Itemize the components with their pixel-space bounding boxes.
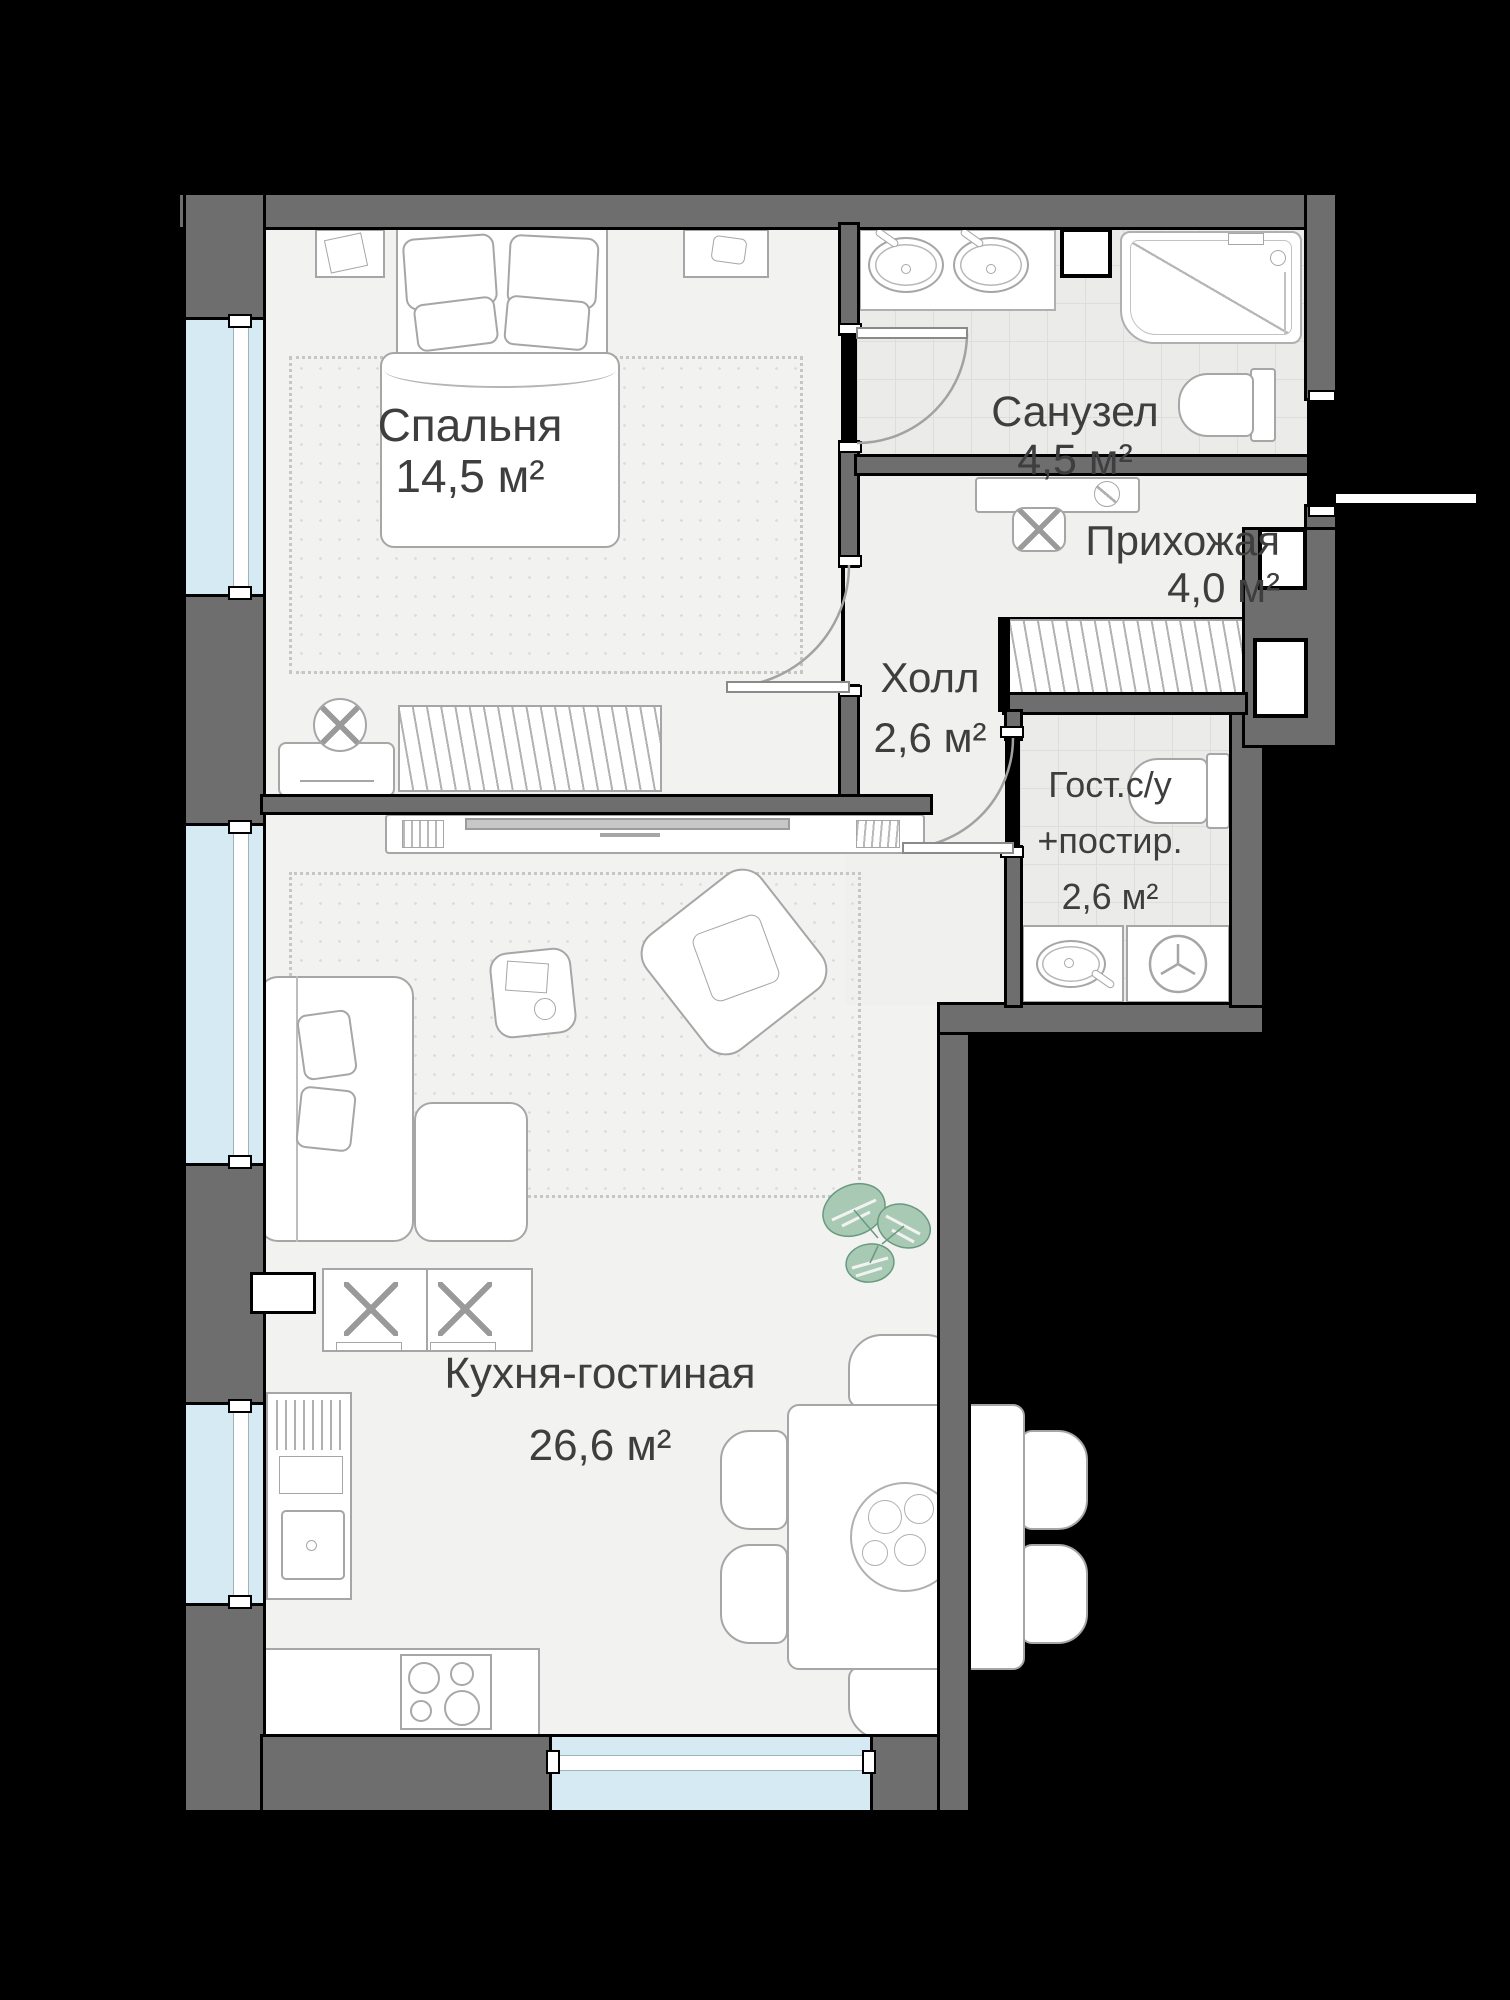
drain-dot [1064, 958, 1074, 968]
wall-hall-left [841, 443, 857, 565]
burner-icon [410, 1700, 432, 1722]
room-name: Холл [840, 648, 1020, 708]
tv-icon [465, 818, 790, 830]
wall-right-living [940, 1032, 968, 1810]
wall-right-top [1307, 195, 1335, 398]
window-cap [228, 314, 252, 328]
window-cap [228, 1595, 252, 1609]
pillow-icon [412, 295, 499, 353]
washing-machine-icon [1126, 925, 1230, 1003]
room-label-kitchen-living: Кухня-гостиная 26,6 м² [370, 1338, 830, 1482]
window-cap [546, 1750, 560, 1774]
hairdryer-icon [1094, 481, 1120, 507]
wall-bottom-left [263, 1737, 552, 1810]
food-deco [862, 1540, 888, 1566]
sofa-back-line [258, 976, 298, 1242]
cup-deco [534, 998, 556, 1020]
food-deco [904, 1494, 934, 1524]
window-cap [228, 1399, 252, 1413]
wardrobe-hatch-icon [1007, 619, 1245, 695]
column-niche [250, 1272, 316, 1314]
window-cap [228, 586, 252, 600]
wall-wardrobe-bottom [1005, 695, 1245, 712]
blanket-fold [384, 352, 616, 388]
shower-head-icon [1270, 250, 1286, 266]
books-deco [402, 820, 444, 848]
room-name: Спальня [310, 400, 630, 451]
food-deco [894, 1534, 926, 1566]
burner-icon [450, 1662, 474, 1686]
drain-dot [986, 264, 996, 274]
window-bottom [552, 1737, 870, 1810]
burner-icon [408, 1662, 440, 1694]
room-area: 2,6 м² [1015, 869, 1205, 925]
window-kitchen [186, 1405, 263, 1603]
pillow-icon [295, 1085, 357, 1153]
chair-icon [1020, 1430, 1088, 1530]
wall-guest-wc-right [1232, 712, 1262, 1005]
room-name-2: +постир. [1015, 813, 1205, 869]
fan-icon [313, 698, 367, 752]
entrance-jamb [1308, 505, 1336, 517]
room-label-guest-wc: Гост.с/у +постир. 2,6 м² [1015, 757, 1205, 925]
shelf-deco [279, 1456, 343, 1494]
window-cap [228, 1155, 252, 1169]
pillow-icon [296, 1009, 359, 1082]
window-cap [862, 1750, 876, 1774]
wall-left-corner-bottom [186, 1603, 263, 1810]
glass-line [1284, 272, 1286, 334]
room-name: Санузел [925, 388, 1225, 436]
chair-icon [1020, 1544, 1088, 1644]
room-area: 14,5 м² [310, 451, 630, 502]
nightstand-right-deco [710, 235, 747, 265]
door-jamb [838, 323, 862, 335]
window-bedroom [186, 320, 263, 594]
room-name: Кухня-гостиная [370, 1338, 830, 1410]
duct-shaft-icon [1253, 638, 1308, 718]
entrance-jamb [1308, 390, 1336, 402]
room-label-bedroom: Спальня 14,5 м² [310, 400, 630, 502]
wardrobe-hatch-icon [398, 705, 662, 792]
door-jamb [838, 441, 862, 453]
room-area: 26,6 м² [370, 1410, 830, 1482]
dresser-drawer-line [300, 780, 374, 782]
fridge-grille [276, 1400, 342, 1450]
room-name: Прихожая [990, 517, 1280, 564]
room-area: 4,5 м² [925, 436, 1225, 484]
tablet-deco [505, 961, 549, 994]
window-mullion [233, 320, 249, 594]
wall-tv [263, 797, 930, 812]
wall-top [180, 195, 1335, 227]
duct-shaft-icon [1060, 228, 1112, 278]
chair-icon [720, 1544, 788, 1644]
food-deco [868, 1500, 902, 1534]
window-living [186, 826, 263, 1163]
sofa-chaise [414, 1102, 528, 1242]
wall-left-corner-top [186, 195, 263, 320]
window-mullion [233, 826, 249, 1163]
room-area: 4,0 м² [990, 564, 1280, 611]
room-label-hall: Холл 2,6 м² [840, 648, 1020, 768]
pillow-icon [503, 294, 591, 351]
wall-bathroom-left-stub [841, 225, 857, 333]
side-table-icon [488, 946, 579, 1040]
books-deco [856, 820, 900, 848]
burner-icon [444, 1690, 480, 1726]
toilet-icon [1206, 753, 1230, 829]
window-mullion [552, 1755, 870, 1771]
shower-mixer-icon [1228, 233, 1264, 245]
tv-stand-line [600, 833, 660, 837]
x-icon [344, 1282, 398, 1336]
entrance-door-leaf [1336, 494, 1476, 503]
room-name: Гост.с/у [1015, 757, 1205, 813]
room-label-entry-hall: Прихожая 4,0 м² [990, 517, 1280, 611]
room-area: 2,6 м² [840, 708, 1020, 768]
drain-dot [901, 264, 911, 274]
window-mullion [233, 1405, 249, 1603]
window-cap [228, 820, 252, 834]
room-label-bathroom: Санузел 4,5 м² [925, 388, 1225, 484]
floor-plan: Спальня 14,5 м² Санузел 4,5 м² Прихожая … [0, 0, 1510, 2000]
wall-guest-wc-bottom [940, 1005, 1262, 1032]
bathtub-inner [1130, 240, 1292, 335]
wall-left-pier [186, 594, 263, 826]
x-icon [438, 1282, 492, 1336]
faucet-icon [306, 1540, 317, 1551]
door-jamb [838, 555, 862, 567]
